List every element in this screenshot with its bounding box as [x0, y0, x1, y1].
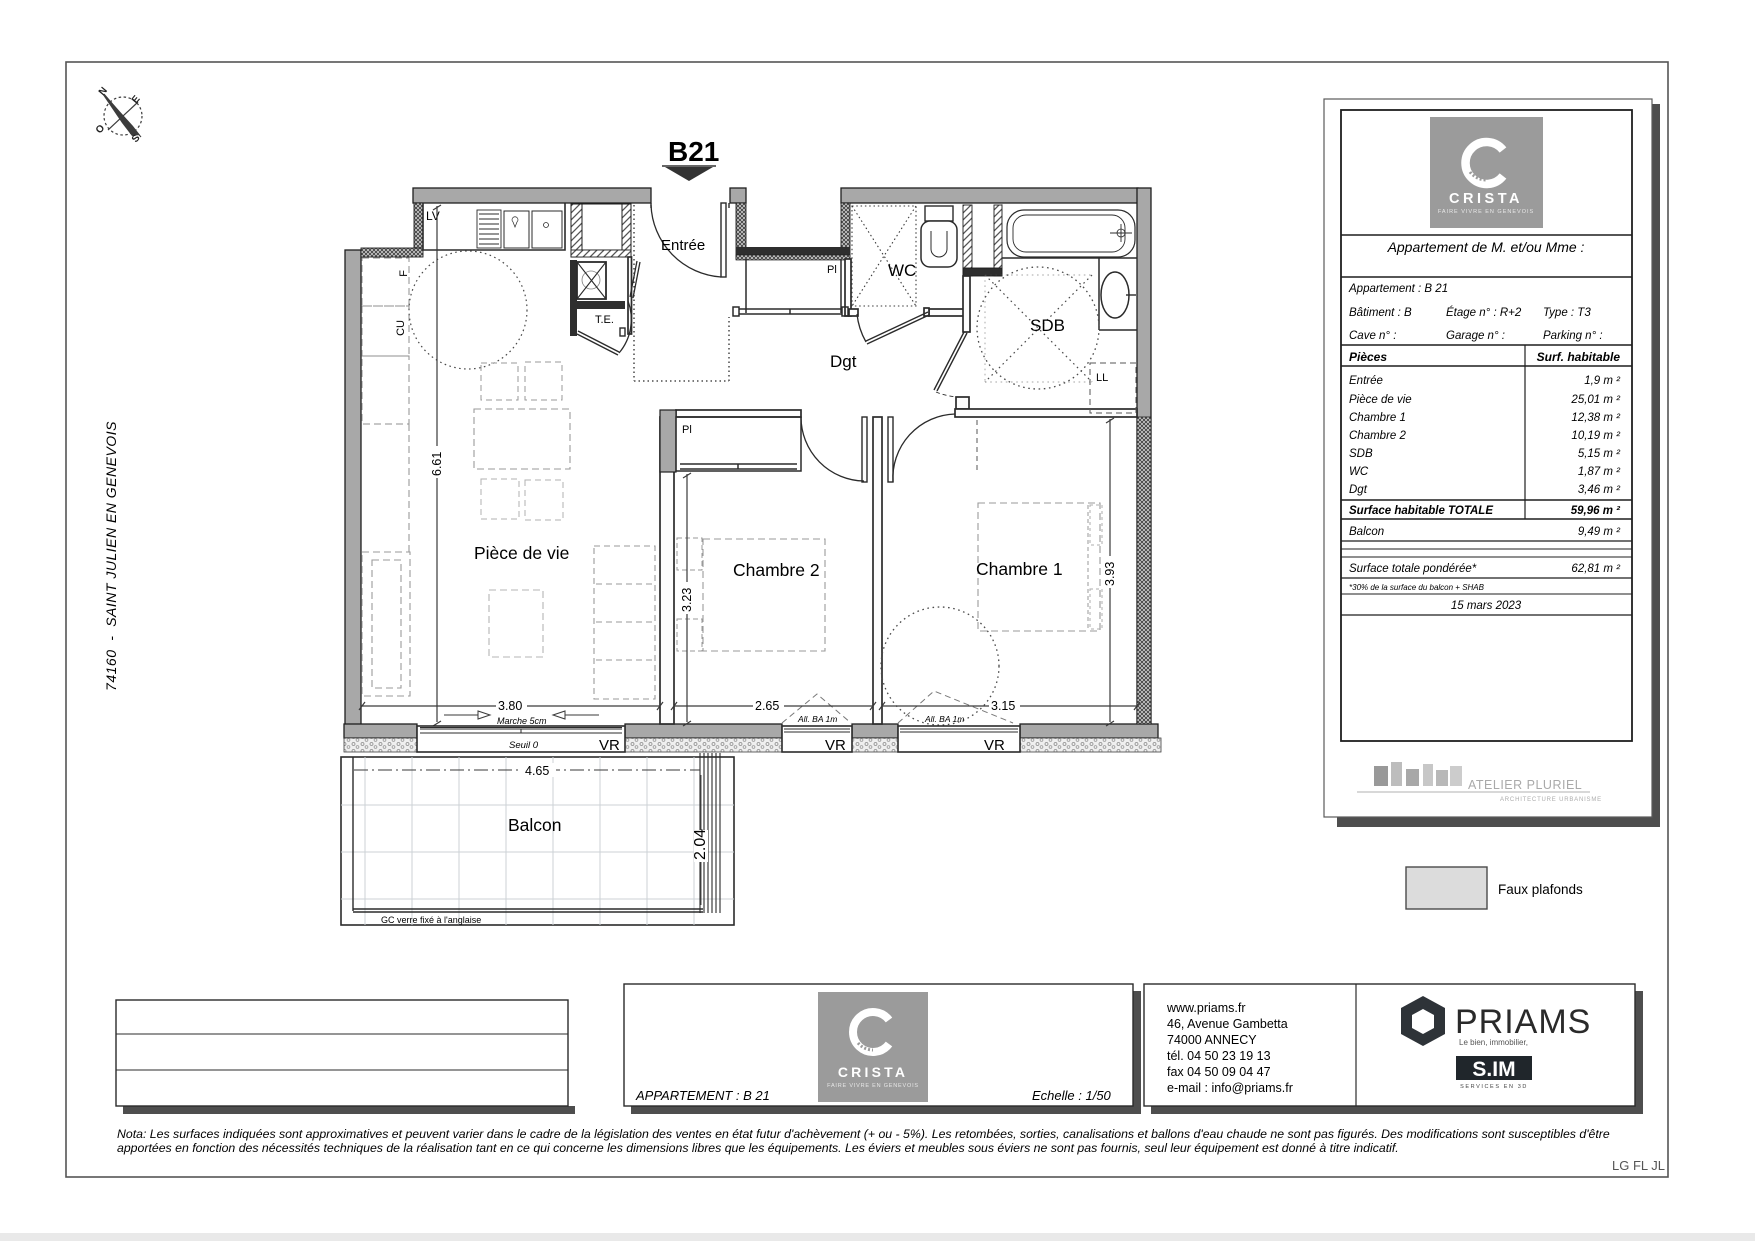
svg-text:e-mail : info@priams.fr: e-mail : info@priams.fr — [1167, 1081, 1293, 1095]
svg-text:1,9 m ²: 1,9 m ² — [1584, 375, 1621, 387]
svg-text:74160 - SAINT JULIEN EN GENE: 74160 - SAINT JULIEN EN GENEVOIS — [103, 421, 119, 691]
svg-text:Balcon: Balcon — [1349, 526, 1384, 538]
svg-text:Pièces: Pièces — [1349, 350, 1387, 364]
svg-text:Cave n° :: Cave n° : — [1349, 330, 1396, 342]
svg-text:PRIAMS: PRIAMS — [1455, 1003, 1591, 1041]
svg-text:Chambre 1: Chambre 1 — [976, 559, 1063, 579]
svg-text:Bâtiment : B: Bâtiment : B — [1349, 307, 1412, 319]
svg-text:VR: VR — [599, 737, 620, 754]
svg-text:SDB: SDB — [1349, 448, 1373, 460]
svg-text:S.IM: S.IM — [1472, 1058, 1515, 1081]
svg-text:25,01 m ²: 25,01 m ² — [1570, 394, 1621, 406]
svg-text:Chambre 2: Chambre 2 — [733, 560, 820, 580]
svg-text:Entrée: Entrée — [661, 237, 705, 254]
svg-text:3.23: 3.23 — [680, 588, 694, 612]
svg-text:LL: LL — [1096, 372, 1108, 384]
svg-text:LV: LV — [426, 209, 440, 223]
svg-text:46, Avenue Gambetta: 46, Avenue Gambetta — [1167, 1017, 1288, 1031]
svg-text:Chambre 1: Chambre 1 — [1349, 412, 1406, 424]
svg-text:12,38 m ²: 12,38 m ² — [1571, 412, 1621, 424]
svg-text:T.E.: T.E. — [595, 314, 614, 326]
svg-text:2.04: 2.04 — [692, 829, 709, 860]
svg-text:6.61: 6.61 — [430, 452, 444, 476]
svg-text:Appartement de M. et/ou Mme :: Appartement de M. et/ou Mme : — [1387, 239, 1585, 255]
svg-text:Chambre 2: Chambre 2 — [1349, 430, 1406, 442]
svg-text:WC: WC — [1349, 466, 1369, 478]
svg-text:FAIRE VIVRE EN GENEVOIS: FAIRE VIVRE EN GENEVOIS — [1438, 209, 1534, 215]
svg-text:B21: B21 — [668, 136, 719, 167]
svg-text:3,46 m ²: 3,46 m ² — [1578, 484, 1621, 496]
svg-text:CRISTA: CRISTA — [1449, 191, 1523, 207]
svg-text:Pl: Pl — [827, 264, 837, 276]
svg-text:3.93: 3.93 — [1103, 562, 1117, 586]
svg-text:3.15: 3.15 — [991, 699, 1015, 713]
svg-text:All. BA 1m: All. BA 1m — [924, 714, 964, 724]
svg-text:Dgt: Dgt — [1349, 484, 1368, 496]
svg-text:ARCHITECTURE URBANISME: ARCHITECTURE URBANISME — [1500, 797, 1602, 803]
svg-text:Étage n° : R+2: Étage n° : R+2 — [1446, 306, 1522, 319]
svg-text:ATELIER PLURIEL: ATELIER PLURIEL — [1468, 778, 1582, 792]
svg-text:2.65: 2.65 — [755, 699, 779, 713]
svg-text:GC verre fixé à l'anglaise: GC verre fixé à l'anglaise — [381, 915, 481, 925]
svg-text:SDB: SDB — [1030, 316, 1065, 335]
svg-text:3.80: 3.80 — [498, 699, 522, 713]
svg-text:tél. 04 50 23 19 13: tél. 04 50 23 19 13 — [1167, 1049, 1271, 1063]
svg-text:Echelle : 1/50: Echelle : 1/50 — [1032, 1088, 1112, 1103]
svg-text:VR: VR — [984, 737, 1005, 754]
svg-text:1,87 m ²: 1,87 m ² — [1578, 466, 1621, 478]
svg-text:Faux plafonds: Faux plafonds — [1498, 882, 1583, 897]
svg-text:Dgt: Dgt — [830, 352, 857, 371]
svg-text:74000 ANNECY: 74000 ANNECY — [1167, 1033, 1257, 1047]
svg-text:Pl: Pl — [682, 424, 692, 436]
svg-text:apportées en fonction des néce: apportées en fonction des nécessités tec… — [117, 1141, 1399, 1155]
svg-text:Seuil 0: Seuil 0 — [509, 740, 539, 751]
svg-text:15 mars 2023: 15 mars 2023 — [1451, 600, 1522, 612]
svg-text:Surface totale pondérée*: Surface totale pondérée* — [1349, 563, 1477, 575]
svg-text:SERVICES EN 3D: SERVICES EN 3D — [1460, 1084, 1528, 1090]
svg-text:www.priams.fr: www.priams.fr — [1166, 1001, 1245, 1015]
svg-text:Nota: Les surfaces indiquées s: Nota: Les surfaces indiquées sont approx… — [117, 1127, 1610, 1141]
svg-text:CRISTA: CRISTA — [838, 1064, 908, 1080]
svg-text:Appartement : B 21: Appartement : B 21 — [1348, 283, 1448, 295]
svg-text:5,15 m ²: 5,15 m ² — [1578, 448, 1621, 460]
svg-text:CU: CU — [395, 320, 407, 336]
svg-text:F: F — [398, 270, 410, 277]
svg-text:fax 04 50 09 04 47: fax 04 50 09 04 47 — [1167, 1065, 1271, 1079]
svg-text:Marche 5cm: Marche 5cm — [497, 716, 547, 726]
svg-text:10,19 m ²: 10,19 m ² — [1571, 430, 1621, 442]
svg-text:Type : T3: Type : T3 — [1543, 307, 1591, 319]
svg-text:Pièce de vie: Pièce de vie — [474, 543, 569, 563]
svg-text:All. BA 1m: All. BA 1m — [797, 714, 837, 724]
svg-text:Garage n° :: Garage n° : — [1446, 330, 1505, 342]
svg-text:Parking n° :: Parking n° : — [1543, 330, 1603, 342]
svg-text:FAIRE VIVRE EN GENEVOIS: FAIRE VIVRE EN GENEVOIS — [827, 1083, 919, 1089]
svg-text:Balcon: Balcon — [508, 815, 562, 835]
svg-text:APPARTEMENT : B 21: APPARTEMENT : B 21 — [635, 1088, 770, 1103]
svg-text:Le bien, immobilier,: Le bien, immobilier, — [1459, 1038, 1528, 1047]
svg-text:Entrée: Entrée — [1349, 375, 1383, 387]
svg-text:Surface habitable TOTALE: Surface habitable TOTALE — [1349, 505, 1493, 517]
svg-text:9,49 m ²: 9,49 m ² — [1578, 526, 1621, 538]
svg-text:WC: WC — [888, 261, 916, 280]
svg-text:Pièce de vie: Pièce de vie — [1349, 394, 1412, 406]
svg-text:LG FL JL: LG FL JL — [1612, 1158, 1665, 1173]
svg-text:*30% de la surface du balcon +: *30% de la surface du balcon + SHAB — [1349, 583, 1485, 592]
svg-text:4.65: 4.65 — [525, 764, 549, 778]
svg-text:62,81 m ²: 62,81 m ² — [1571, 563, 1621, 575]
svg-text:Surf. habitable: Surf. habitable — [1537, 350, 1621, 364]
svg-text:VR: VR — [825, 737, 846, 754]
svg-text:59,96 m ²: 59,96 m ² — [1571, 505, 1621, 517]
